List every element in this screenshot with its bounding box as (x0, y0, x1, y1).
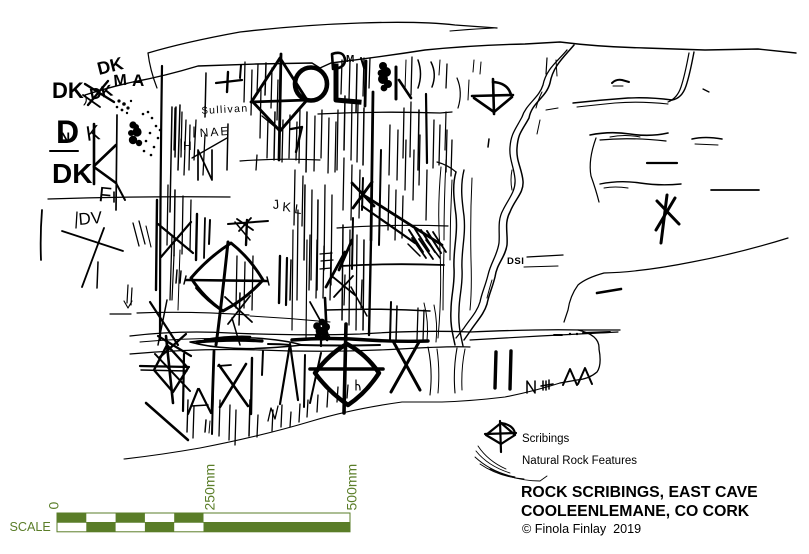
svg-text:J: J (272, 196, 280, 212)
svg-text:$ullivan: $ullivan (202, 103, 249, 117)
svg-text:ROCK SCRIBINGS, EAST CAVE: ROCK SCRIBINGS, EAST CAVE (521, 484, 758, 501)
svg-text:© Finola Finlay 2019: © Finola Finlay 2019 (522, 522, 641, 536)
svg-text:SCALE: SCALE (10, 520, 51, 534)
svg-text:N: N (60, 129, 70, 145)
svg-text:DV: DV (78, 208, 104, 229)
svg-text:DSI: DSI (507, 256, 524, 267)
svg-text:Natural Rock Features: Natural Rock Features (522, 455, 637, 467)
svg-text:DK: DK (52, 158, 92, 189)
svg-text:K: K (282, 199, 292, 215)
svg-text:A: A (132, 71, 144, 90)
svg-text:H: H (183, 139, 192, 153)
svg-text:Scribings: Scribings (522, 433, 570, 445)
svg-text:500mm: 500mm (344, 464, 360, 511)
svg-text:F: F (97, 183, 112, 207)
svg-text:COOLEENLEMANE, CO CORK: COOLEENLEMANE, CO CORK (521, 503, 750, 520)
svg-text:DK: DK (52, 78, 84, 103)
svg-text:250mm: 250mm (202, 464, 218, 511)
svg-text:M: M (113, 72, 128, 90)
svg-text:NAE: NAE (199, 124, 231, 140)
svg-text:0: 0 (46, 502, 62, 510)
